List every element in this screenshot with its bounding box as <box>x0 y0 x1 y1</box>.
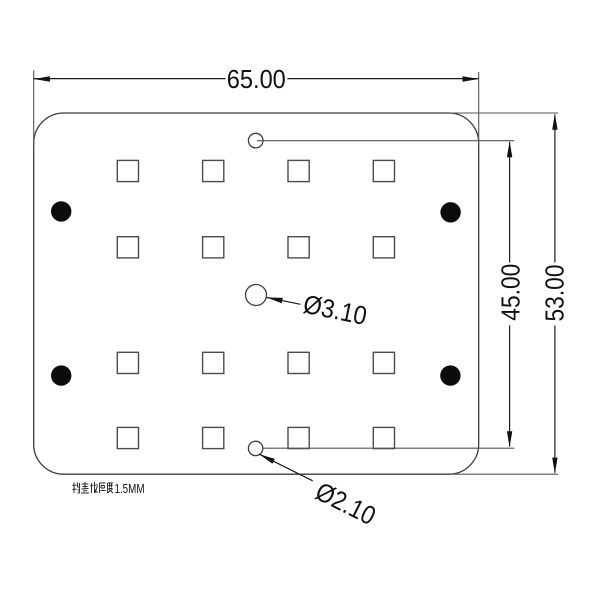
svg-text:65.00: 65.00 <box>227 64 286 94</box>
svg-text:53.00: 53.00 <box>539 265 569 322</box>
svg-text:1.5MM: 1.5MM <box>115 481 145 496</box>
svg-text:45.00: 45.00 <box>495 264 525 321</box>
